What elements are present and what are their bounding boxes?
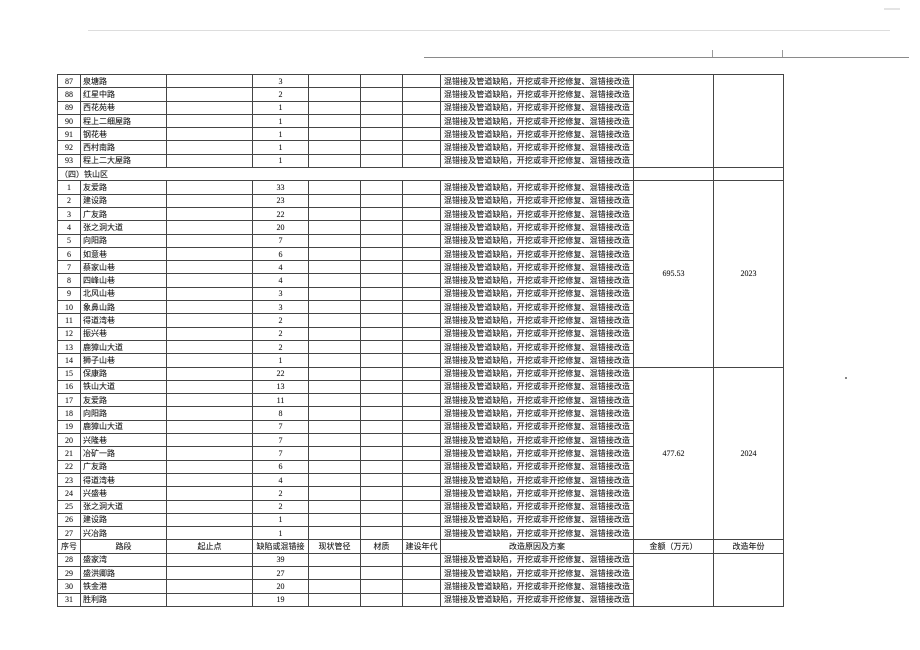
cell-defect-count: 7 [253, 420, 309, 433]
cell-reason: 混错接及管道缺陷，开挖或非开挖修复、混错接改造 [441, 88, 634, 101]
cell-reason: 混错接及管道缺陷，开挖或非开挖修复、混错接改造 [441, 434, 634, 447]
cell-seq: 23 [58, 473, 81, 486]
cell-start-end [167, 394, 253, 407]
cell-defect-count: 1 [253, 354, 309, 367]
cell-start-end [167, 500, 253, 513]
cell-seq: 18 [58, 407, 81, 420]
cell-pipe-diameter [309, 88, 361, 101]
table-row: 15保康路22混错接及管道缺陷，开挖或非开挖修复、混错接改造477.622024 [58, 367, 784, 380]
cell-start-end [167, 287, 253, 300]
cell-seq: 87 [58, 75, 81, 88]
header-reason-plan: 改造原因及方案 [441, 540, 634, 553]
cell-road-name: 广友路 [81, 460, 167, 473]
cell-start-end [167, 553, 253, 566]
cell-defect-count: 20 [253, 221, 309, 234]
cell-start-end [167, 114, 253, 127]
cell-road-name: 向阳路 [81, 407, 167, 420]
cell-reason: 混错接及管道缺陷，开挖或非开挖修复、混错接改造 [441, 327, 634, 340]
cell-start-end [167, 234, 253, 247]
cell-seq: 89 [58, 101, 81, 114]
cell-road-name: 张之洞大道 [81, 221, 167, 234]
table-row: 28盛家湾39混错接及管道缺陷，开挖或非开挖修复、混错接改造 [58, 553, 784, 566]
cell-reason: 混错接及管道缺陷，开挖或非开挖修复、混错接改造 [441, 287, 634, 300]
header-road-segment: 路段 [81, 540, 167, 553]
cell-build-year [403, 287, 441, 300]
cell-build-year [403, 593, 441, 606]
cell-pipe-diameter [309, 553, 361, 566]
cell-build-year [403, 500, 441, 513]
cell-start-end [167, 327, 253, 340]
cell-road-name: 冶矿一路 [81, 447, 167, 460]
cell-seq: 15 [58, 367, 81, 380]
cell-defect-count: 3 [253, 287, 309, 300]
cell-start-end [167, 527, 253, 540]
cell-road-name: 象鼻山路 [81, 301, 167, 314]
cell-pipe-diameter [309, 420, 361, 433]
cell-material [361, 154, 403, 167]
cell-reason: 混错接及管道缺陷，开挖或非开挖修复、混错接改造 [441, 207, 634, 220]
cell-road-name: 蔡家山巷 [81, 261, 167, 274]
cell-reason: 混错接及管道缺陷，开挖或非开挖修复、混错接改造 [441, 154, 634, 167]
cell-material [361, 580, 403, 593]
cell-defect-count: 8 [253, 407, 309, 420]
cell-material [361, 301, 403, 314]
cell-build-year [403, 420, 441, 433]
cell-start-end [167, 128, 253, 141]
table-row: 87泉塘路3混错接及管道缺陷，开挖或非开挖修复、混错接改造 [58, 75, 784, 88]
cell-defect-count: 2 [253, 340, 309, 353]
cell-amount-merged [634, 75, 714, 168]
cell-road-name: 铁金港 [81, 580, 167, 593]
cell-build-year [403, 261, 441, 274]
cell-retrofit-year-merged: 2024 [714, 367, 784, 540]
cell-pipe-diameter [309, 274, 361, 287]
cell-build-year [403, 553, 441, 566]
cell-material [361, 447, 403, 460]
cell-seq: 92 [58, 141, 81, 154]
cell-seq: 7 [58, 261, 81, 274]
cell-seq: 27 [58, 527, 81, 540]
cell-build-year [403, 460, 441, 473]
scan-artifact-column-stub [712, 50, 713, 57]
cell-build-year [403, 274, 441, 287]
header-retrofit-year: 改造年份 [714, 540, 784, 553]
cell-pipe-diameter [309, 327, 361, 340]
cell-material [361, 420, 403, 433]
cell-seq: 11 [58, 314, 81, 327]
cell-pipe-diameter [309, 141, 361, 154]
cell-material [361, 194, 403, 207]
cell-pipe-diameter [309, 181, 361, 194]
cell-seq: 90 [58, 114, 81, 127]
cell-build-year [403, 181, 441, 194]
cell-start-end [167, 434, 253, 447]
cell-start-end [167, 75, 253, 88]
cell-road-name: 盛洪卿路 [81, 566, 167, 579]
cell-material [361, 128, 403, 141]
cell-defect-count: 6 [253, 247, 309, 260]
cell-material [361, 367, 403, 380]
cell-defect-count: 7 [253, 447, 309, 460]
cell-defect-count: 2 [253, 487, 309, 500]
cell-defect-count: 33 [253, 181, 309, 194]
cell-road-name: 狮子山巷 [81, 354, 167, 367]
cell-build-year [403, 434, 441, 447]
cell-road-name: 兴冶路 [81, 527, 167, 540]
cell-seq: 26 [58, 513, 81, 526]
cell-material [361, 75, 403, 88]
cell-material [361, 354, 403, 367]
cell-pipe-diameter [309, 114, 361, 127]
cell-road-name: 如意巷 [81, 247, 167, 260]
cell-seq: 20 [58, 434, 81, 447]
cell-build-year [403, 128, 441, 141]
cell-pipe-diameter [309, 434, 361, 447]
cell-defect-count: 22 [253, 367, 309, 380]
cell-pipe-diameter [309, 473, 361, 486]
cell-start-end [167, 194, 253, 207]
cell-seq: 93 [58, 154, 81, 167]
cell-pipe-diameter [309, 380, 361, 393]
cell-defect-count: 20 [253, 580, 309, 593]
cell-material [361, 141, 403, 154]
cell-build-year [403, 114, 441, 127]
cell-build-year [403, 340, 441, 353]
cell-start-end [167, 420, 253, 433]
cell-seq: 4 [58, 221, 81, 234]
cell-build-year [403, 394, 441, 407]
cell-defect-count: 13 [253, 380, 309, 393]
cell-pipe-diameter [309, 460, 361, 473]
cell-pipe-diameter [309, 314, 361, 327]
cell-defect-count: 39 [253, 553, 309, 566]
cell-reason: 混错接及管道缺陷，开挖或非开挖修复、混错接改造 [441, 367, 634, 380]
cell-pipe-diameter [309, 367, 361, 380]
cell-material [361, 593, 403, 606]
header-material: 材质 [361, 540, 403, 553]
cell-road-name: 胜利路 [81, 593, 167, 606]
cell-seq: 91 [58, 128, 81, 141]
retrofit-roads-table: 87泉塘路3混错接及管道缺陷，开挖或非开挖修复、混错接改造88红星中路2混错接及… [57, 74, 784, 607]
cell-pipe-diameter [309, 580, 361, 593]
cell-road-name: 鹿獐山大道 [81, 340, 167, 353]
cell-build-year [403, 566, 441, 579]
cell-reason: 混错接及管道缺陷，开挖或非开挖修复、混错接改造 [441, 527, 634, 540]
cell-pipe-diameter [309, 527, 361, 540]
cell-reason: 混错接及管道缺陷，开挖或非开挖修复、混错接改造 [441, 500, 634, 513]
cell-reason: 混错接及管道缺陷，开挖或非开挖修复、混错接改造 [441, 566, 634, 579]
cell-start-end [167, 301, 253, 314]
cell-defect-count: 2 [253, 88, 309, 101]
cell-defect-count: 22 [253, 207, 309, 220]
cell-build-year [403, 367, 441, 380]
cell-retrofit-year-merged [714, 553, 784, 606]
cell-reason: 混错接及管道缺陷，开挖或非开挖修复、混错接改造 [441, 580, 634, 593]
cell-build-year [403, 314, 441, 327]
table-row: 1友爱路33混错接及管道缺陷，开挖或非开挖修复、混错接改造695.532023 [58, 181, 784, 194]
cell-pipe-diameter [309, 407, 361, 420]
cell-reason: 混错接及管道缺陷，开挖或非开挖修复、混错接改造 [441, 420, 634, 433]
cell-road-name: 兴盛巷 [81, 487, 167, 500]
cell-defect-count: 4 [253, 261, 309, 274]
cell-pipe-diameter [309, 394, 361, 407]
cell-build-year [403, 301, 441, 314]
cell-reason: 混错接及管道缺陷，开挖或非开挖修复、混错接改造 [441, 473, 634, 486]
cell-pipe-diameter [309, 447, 361, 460]
cell-material [361, 88, 403, 101]
cell-build-year [403, 207, 441, 220]
cell-start-end [167, 354, 253, 367]
cell-defect-count: 19 [253, 593, 309, 606]
cell-start-end [167, 593, 253, 606]
cell-material [361, 460, 403, 473]
cell-defect-count: 3 [253, 301, 309, 314]
cell-defect-count: 11 [253, 394, 309, 407]
cell-seq: 30 [58, 580, 81, 593]
cell-reason: 混错接及管道缺陷，开挖或非开挖修复、混错接改造 [441, 141, 634, 154]
cell-material [361, 434, 403, 447]
cell-reason: 混错接及管道缺陷，开挖或非开挖修复、混错接改造 [441, 234, 634, 247]
cell-material [361, 287, 403, 300]
cell-pipe-diameter [309, 261, 361, 274]
cell-reason: 混错接及管道缺陷，开挖或非开挖修复、混错接改造 [441, 261, 634, 274]
cell-build-year [403, 194, 441, 207]
header-seq: 序号 [58, 540, 81, 553]
cell-material [361, 101, 403, 114]
cell-build-year [403, 221, 441, 234]
cell-build-year [403, 447, 441, 460]
cell-start-end [167, 261, 253, 274]
cell-material [361, 274, 403, 287]
cell-reason: 混错接及管道缺陷，开挖或非开挖修复、混错接改造 [441, 181, 634, 194]
cell-seq: 6 [58, 247, 81, 260]
cell-reason: 混错接及管道缺陷，开挖或非开挖修复、混错接改造 [441, 314, 634, 327]
cell-reason: 混错接及管道缺陷，开挖或非开挖修复、混错接改造 [441, 114, 634, 127]
cell-road-name: 铁山大道 [81, 380, 167, 393]
cell-amount-merged [634, 553, 714, 606]
cell-seq: 5 [58, 234, 81, 247]
cell-material [361, 566, 403, 579]
scanned-page: 87泉塘路3混错接及管道缺陷，开挖或非开挖修复、混错接改造88红星中路2混错接及… [0, 0, 920, 650]
cell-seq: 8 [58, 274, 81, 287]
cell-defect-count: 2 [253, 500, 309, 513]
cell-road-name: 盛家湾 [81, 553, 167, 566]
cell-defect-count: 2 [253, 314, 309, 327]
cell-defect-count: 1 [253, 154, 309, 167]
cell-material [361, 473, 403, 486]
cell-road-name: 西花苑巷 [81, 101, 167, 114]
cell-reason: 混错接及管道缺陷，开挖或非开挖修复、混错接改造 [441, 75, 634, 88]
cell-pipe-diameter [309, 340, 361, 353]
cell-reason: 混错接及管道缺陷，开挖或非开挖修复、混错接改造 [441, 301, 634, 314]
cell-material [361, 327, 403, 340]
cell-material [361, 487, 403, 500]
cell-amount-empty [634, 168, 714, 181]
cell-seq: 13 [58, 340, 81, 353]
cell-road-name: 向阳路 [81, 234, 167, 247]
cell-material [361, 114, 403, 127]
cell-reason: 混错接及管道缺陷，开挖或非开挖修复、混错接改造 [441, 194, 634, 207]
cell-retrofit-year-merged [714, 75, 784, 168]
cell-start-end [167, 247, 253, 260]
cell-pipe-diameter [309, 207, 361, 220]
cell-build-year [403, 513, 441, 526]
cell-pipe-diameter [309, 566, 361, 579]
cell-road-name: 红星中路 [81, 88, 167, 101]
cell-road-name: 得道湾巷 [81, 314, 167, 327]
cell-material [361, 261, 403, 274]
cell-material [361, 247, 403, 260]
cell-start-end [167, 340, 253, 353]
cell-reason: 混错接及管道缺陷，开挖或非开挖修复、混错接改造 [441, 221, 634, 234]
cell-reason: 混错接及管道缺陷，开挖或非开挖修复、混错接改造 [441, 128, 634, 141]
cell-seq: 22 [58, 460, 81, 473]
cell-defect-count: 6 [253, 460, 309, 473]
cell-road-name: 友爱路 [81, 181, 167, 194]
cell-start-end [167, 407, 253, 420]
cell-defect-count: 4 [253, 473, 309, 486]
cell-material [361, 527, 403, 540]
cell-seq: 3 [58, 207, 81, 220]
cell-build-year [403, 327, 441, 340]
scan-artifact-column-stub [782, 50, 783, 57]
cell-seq: 10 [58, 301, 81, 314]
cell-reason: 混错接及管道缺陷，开挖或非开挖修复、混错接改造 [441, 593, 634, 606]
cell-reason: 混错接及管道缺陷，开挖或非开挖修复、混错接改造 [441, 340, 634, 353]
header-build-year: 建设年代 [403, 540, 441, 553]
cell-seq: 25 [58, 500, 81, 513]
cell-seq: 21 [58, 447, 81, 460]
cell-defect-count: 1 [253, 141, 309, 154]
cell-amount-merged: 695.53 [634, 181, 714, 367]
cell-reason: 混错接及管道缺陷，开挖或非开挖修复、混错接改造 [441, 553, 634, 566]
cell-defect-count: 7 [253, 234, 309, 247]
cell-pipe-diameter [309, 487, 361, 500]
cell-build-year [403, 247, 441, 260]
cell-reason: 混错接及管道缺陷，开挖或非开挖修复、混错接改造 [441, 460, 634, 473]
cell-build-year [403, 88, 441, 101]
column-header-row: 序号路段起止点缺陷或混错接现状管径材质建设年代改造原因及方案金额（万元）改造年份 [58, 540, 784, 553]
scan-artifact-ink-dot [845, 377, 847, 379]
cell-material [361, 314, 403, 327]
cell-start-end [167, 101, 253, 114]
cell-road-name: 保康路 [81, 367, 167, 380]
cell-reason: 混错接及管道缺陷，开挖或非开挖修复、混错接改造 [441, 447, 634, 460]
header-defect-count: 缺陷或混错接 [253, 540, 309, 553]
cell-pipe-diameter [309, 301, 361, 314]
cell-start-end [167, 487, 253, 500]
cell-material [361, 513, 403, 526]
cell-start-end [167, 274, 253, 287]
section-label: （四）铁山区 [58, 168, 634, 181]
cell-start-end [167, 181, 253, 194]
cell-build-year [403, 234, 441, 247]
cell-retrofit-year-merged: 2023 [714, 181, 784, 367]
cell-seq: 19 [58, 420, 81, 433]
cell-build-year [403, 154, 441, 167]
cell-start-end [167, 460, 253, 473]
cell-build-year [403, 141, 441, 154]
cell-defect-count: 7 [253, 434, 309, 447]
cell-road-name: 钢花巷 [81, 128, 167, 141]
cell-defect-count: 1 [253, 101, 309, 114]
cell-build-year [403, 380, 441, 393]
cell-defect-count: 1 [253, 128, 309, 141]
cell-material [361, 207, 403, 220]
cell-seq: 9 [58, 287, 81, 300]
cell-material [361, 553, 403, 566]
cell-build-year [403, 354, 441, 367]
cell-build-year [403, 487, 441, 500]
cell-reason: 混错接及管道缺陷，开挖或非开挖修复、混错接改造 [441, 394, 634, 407]
cell-material [361, 394, 403, 407]
cell-start-end [167, 314, 253, 327]
cell-build-year [403, 473, 441, 486]
cell-pipe-diameter [309, 154, 361, 167]
cell-road-name: 西村南路 [81, 141, 167, 154]
cell-material [361, 500, 403, 513]
cell-start-end [167, 380, 253, 393]
cell-build-year [403, 75, 441, 88]
cell-road-name: 泉塘路 [81, 75, 167, 88]
cell-reason: 混错接及管道缺陷，开挖或非开挖修复、混错接改造 [441, 487, 634, 500]
cell-pipe-diameter [309, 354, 361, 367]
header-start-end: 起止点 [167, 540, 253, 553]
cell-pipe-diameter [309, 75, 361, 88]
cell-amount-merged: 477.62 [634, 367, 714, 540]
cell-road-name: 张之洞大道 [81, 500, 167, 513]
cell-seq: 12 [58, 327, 81, 340]
cell-defect-count: 3 [253, 75, 309, 88]
cell-start-end [167, 207, 253, 220]
cell-seq: 2 [58, 194, 81, 207]
cell-pipe-diameter [309, 234, 361, 247]
cell-start-end [167, 154, 253, 167]
cell-road-name: 程上二大屋路 [81, 154, 167, 167]
scan-artifact-speck [884, 8, 900, 10]
cell-pipe-diameter [309, 513, 361, 526]
cell-seq: 1 [58, 181, 81, 194]
cell-reason: 混错接及管道缺陷，开挖或非开挖修复、混错接改造 [441, 407, 634, 420]
cell-defect-count: 23 [253, 194, 309, 207]
cell-pipe-diameter [309, 101, 361, 114]
cell-build-year [403, 527, 441, 540]
cell-start-end [167, 447, 253, 460]
cell-seq: 29 [58, 566, 81, 579]
cell-material [361, 340, 403, 353]
cell-start-end [167, 221, 253, 234]
cell-material [361, 181, 403, 194]
cell-pipe-diameter [309, 593, 361, 606]
cell-reason: 混错接及管道缺陷，开挖或非开挖修复、混错接改造 [441, 513, 634, 526]
cell-defect-count: 1 [253, 513, 309, 526]
scan-artifact-faint-line [88, 30, 890, 31]
cell-reason: 混错接及管道缺陷，开挖或非开挖修复、混错接改造 [441, 354, 634, 367]
cell-defect-count: 4 [253, 274, 309, 287]
scan-artifact-cutoff-row-border [424, 57, 909, 58]
cell-build-year [403, 407, 441, 420]
cell-road-name: 四峰山巷 [81, 274, 167, 287]
cell-seq: 28 [58, 553, 81, 566]
cell-reason: 混错接及管道缺陷，开挖或非开挖修复、混错接改造 [441, 274, 634, 287]
cell-start-end [167, 367, 253, 380]
cell-start-end [167, 580, 253, 593]
cell-pipe-diameter [309, 128, 361, 141]
cell-start-end [167, 566, 253, 579]
cell-seq: 24 [58, 487, 81, 500]
cell-build-year [403, 101, 441, 114]
cell-road-name: 友爱路 [81, 394, 167, 407]
